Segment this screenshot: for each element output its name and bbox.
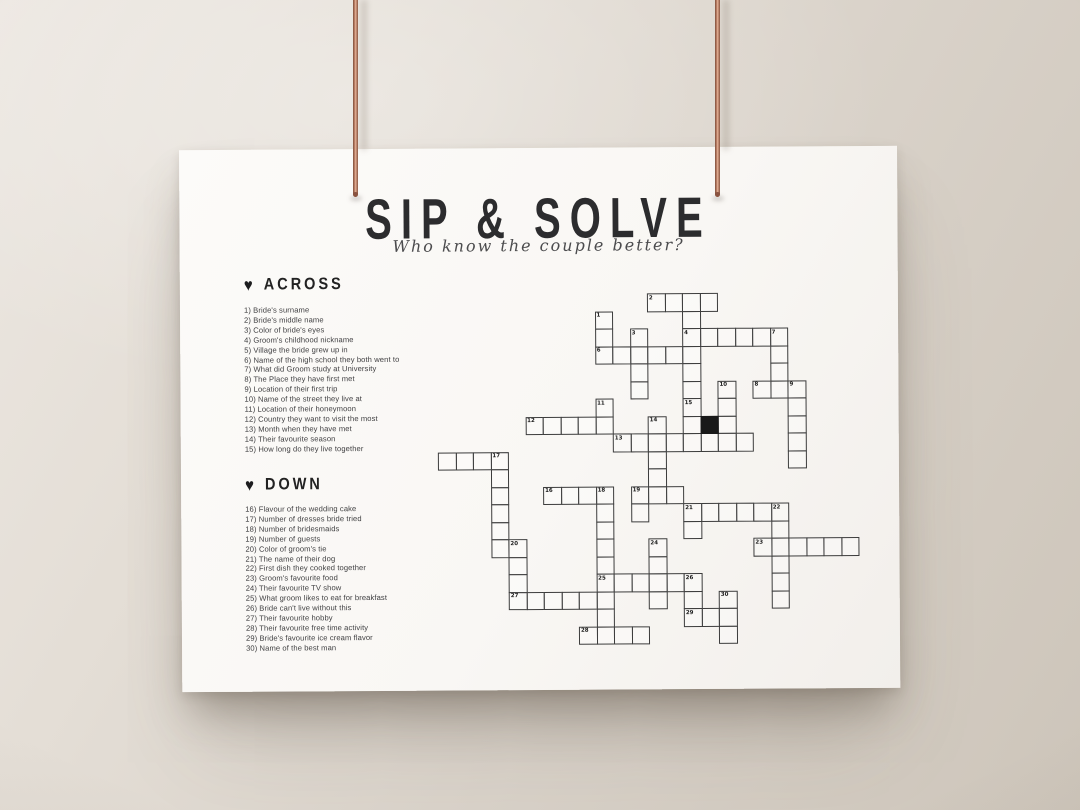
rod-shadow-left xyxy=(361,0,367,150)
hanging-rod-right xyxy=(715,0,720,197)
vignette-overlay xyxy=(0,0,1080,810)
hanging-rod-left xyxy=(353,0,358,197)
rod-shadow-right xyxy=(723,0,729,150)
